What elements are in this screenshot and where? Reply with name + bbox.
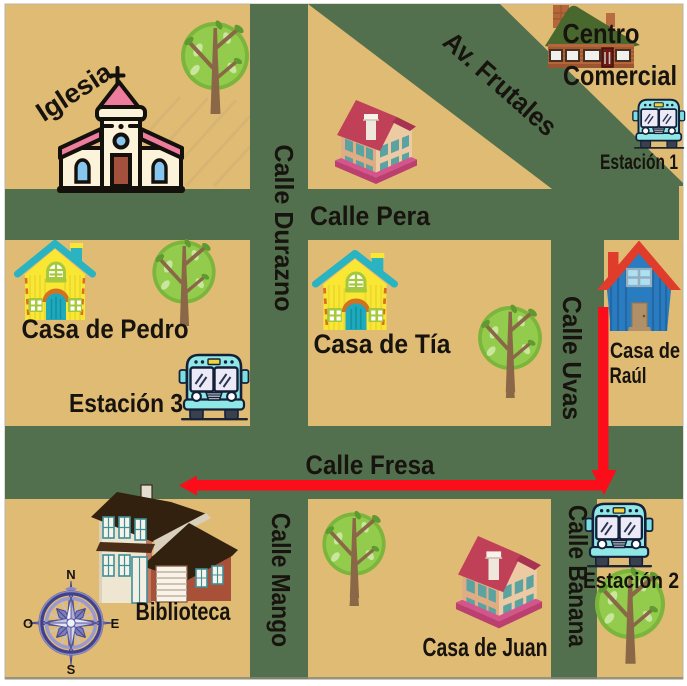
svg-text:E: E bbox=[111, 616, 120, 631]
svg-text:Estación 2: Estación 2 bbox=[583, 568, 679, 593]
svg-text:Estación 1: Estación 1 bbox=[600, 151, 678, 174]
svg-text:Casa de Juan: Casa de Juan bbox=[423, 632, 548, 662]
svg-text:O: O bbox=[23, 616, 33, 631]
svg-text:Casa de: Casa de bbox=[610, 338, 680, 363]
svg-text:Centro: Centro bbox=[563, 18, 640, 49]
svg-text:Calle Fresa: Calle Fresa bbox=[306, 450, 436, 480]
svg-text:Raúl: Raúl bbox=[610, 363, 647, 388]
svg-text:N: N bbox=[66, 567, 75, 582]
svg-text:Calle Uvas: Calle Uvas bbox=[557, 296, 587, 420]
svg-text:Calle Mango: Calle Mango bbox=[266, 513, 296, 647]
svg-text:S: S bbox=[67, 662, 76, 677]
svg-text:Calle Durazno: Calle Durazno bbox=[269, 145, 299, 312]
svg-text:Estación 3: Estación 3 bbox=[69, 388, 183, 418]
svg-text:Biblioteca: Biblioteca bbox=[136, 598, 232, 626]
svg-text:Casa de Pedro: Casa de Pedro bbox=[22, 314, 189, 344]
svg-text:Comercial: Comercial bbox=[563, 60, 677, 91]
svg-text:Calle Pera: Calle Pera bbox=[310, 201, 431, 231]
svg-text:Casa de Tía: Casa de Tía bbox=[314, 329, 452, 359]
